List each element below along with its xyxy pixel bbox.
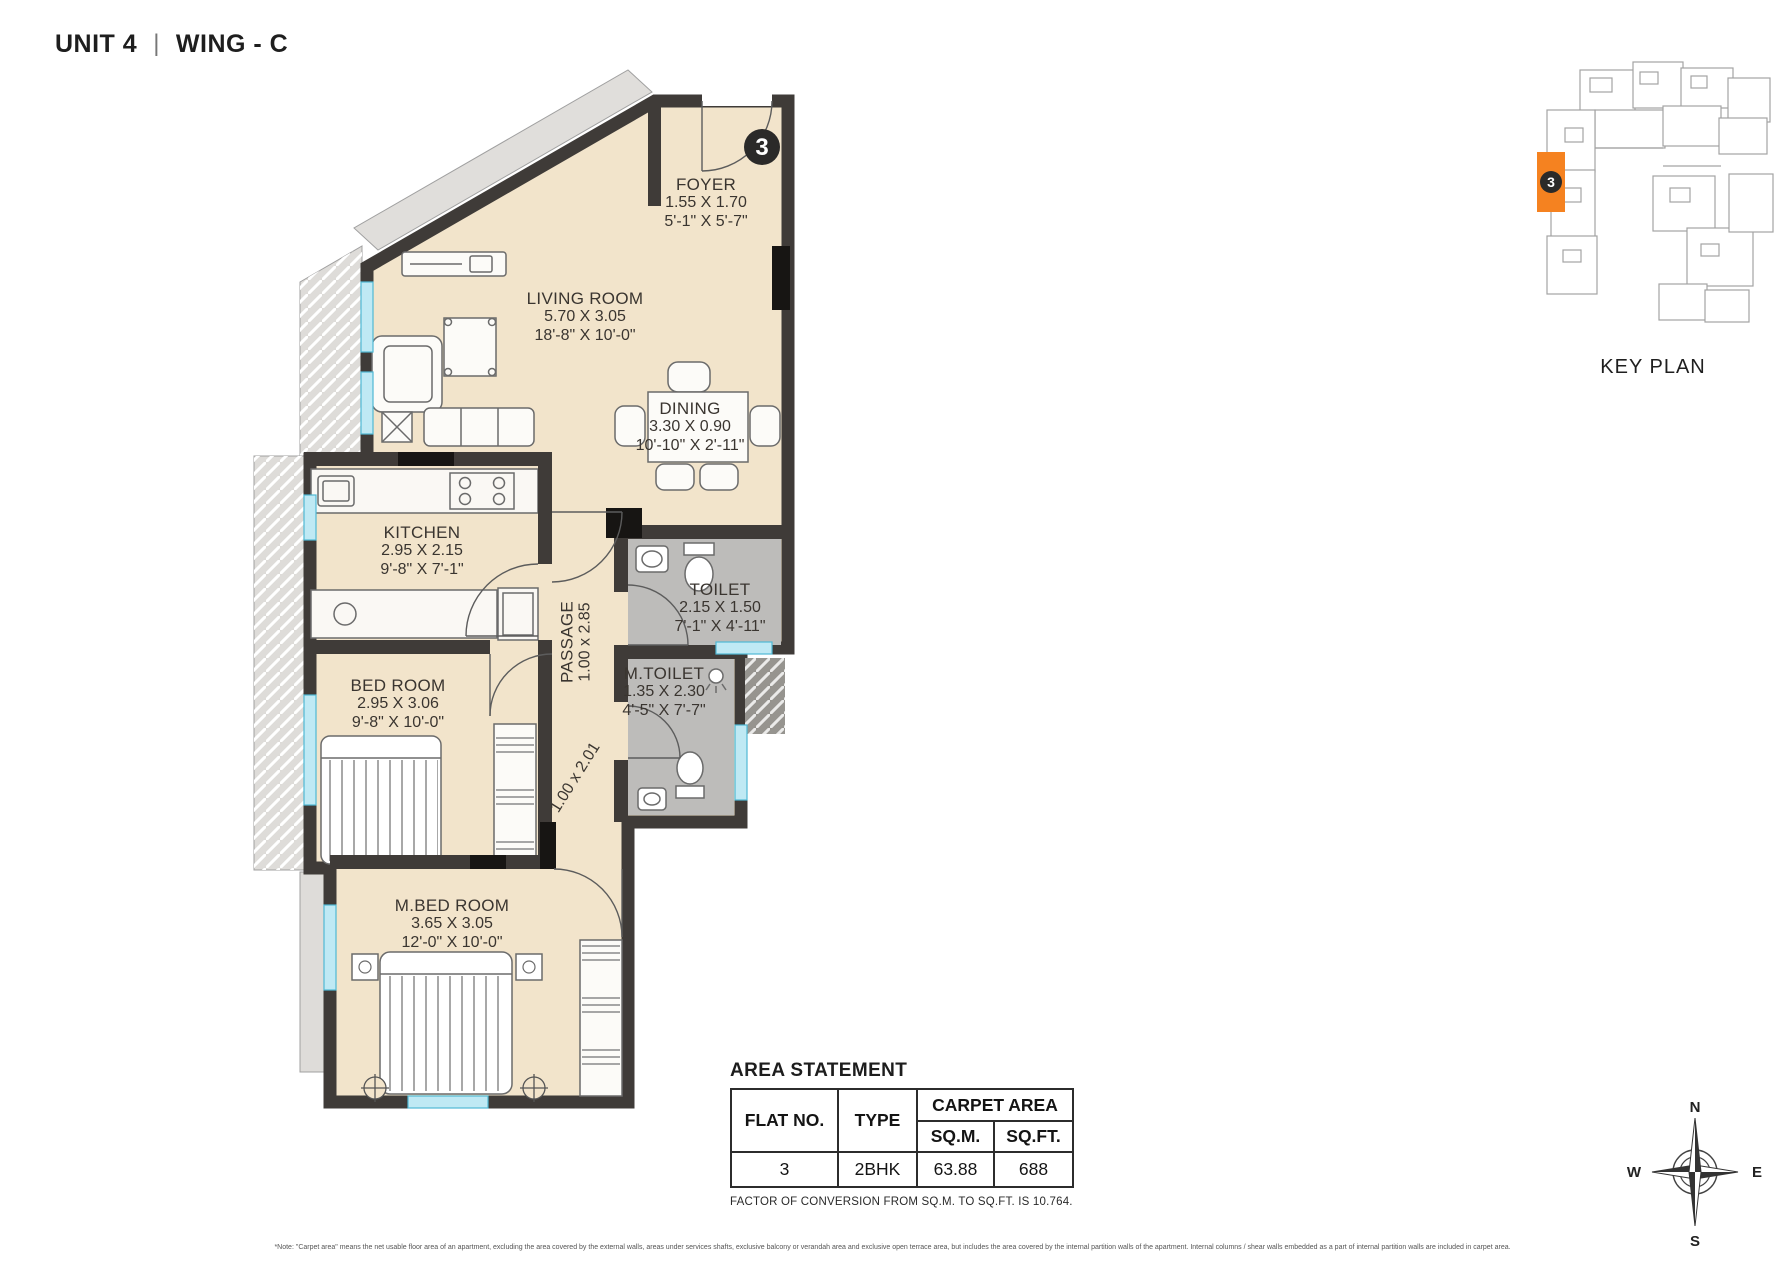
conversion-note: FACTOR OF CONVERSION FROM SQ.M. TO SQ.FT… bbox=[730, 1196, 1073, 1208]
mbedroom-furniture bbox=[352, 940, 622, 1102]
room-dim-m: 1.35 X 2.30 bbox=[622, 683, 705, 702]
room-dim-m: 2.15 X 1.50 bbox=[675, 599, 766, 618]
window bbox=[361, 282, 373, 352]
room-name: DINING bbox=[636, 399, 745, 418]
window bbox=[361, 372, 373, 434]
window bbox=[304, 495, 316, 540]
kitchen-label: KITCHEN 2.95 X 2.15 9'-8" X 7'-1" bbox=[380, 523, 463, 579]
side-table bbox=[516, 954, 542, 980]
room-dim-m: 2.95 X 3.06 bbox=[351, 695, 446, 714]
compass-north-label: N bbox=[1690, 1099, 1701, 1116]
bedroom-label: BED ROOM 2.95 X 3.06 9'-8" X 10'-0" bbox=[351, 676, 446, 732]
area-statement-table: FLAT NO. TYPE CARPET AREA SQ.M. SQ.FT. 3… bbox=[730, 1088, 1074, 1188]
room-dim-m: 5.70 X 3.05 bbox=[527, 308, 644, 327]
cell-type: 2BHK bbox=[838, 1152, 917, 1187]
carpet-area-footnote: *Note: "Carpet area" means the net usabl… bbox=[243, 1244, 1543, 1251]
key-plan-drawing: 3 bbox=[1537, 62, 1773, 322]
unit-number-badge: 3 bbox=[744, 129, 780, 165]
room-name: M.TOILET bbox=[622, 664, 705, 683]
area-statement-title: AREA STATEMENT bbox=[730, 1060, 907, 1082]
compass-south-label: S bbox=[1690, 1233, 1700, 1250]
foyer-label: FOYER 1.55 X 1.70 5'-1" X 5'-7" bbox=[664, 175, 747, 231]
key-plan-badge-text: 3 bbox=[1547, 174, 1555, 190]
title-separator: | bbox=[153, 30, 160, 58]
room-dim-ft: 9'-8" X 10'-0" bbox=[351, 714, 446, 733]
side-table bbox=[352, 954, 378, 980]
service-shaft bbox=[745, 658, 785, 734]
floor-plan-page: 3 3 bbox=[0, 0, 1785, 1262]
room-name: KITCHEN bbox=[380, 523, 463, 542]
window bbox=[735, 725, 747, 800]
window bbox=[408, 1096, 488, 1108]
room-dim-ft: 9'-8" X 7'-1" bbox=[380, 561, 463, 580]
dining-chair bbox=[750, 406, 780, 446]
room-dim-m: 3.65 X 3.05 bbox=[395, 915, 509, 934]
room-dim-m: 2.95 X 2.15 bbox=[380, 542, 463, 561]
compass-west-label: W bbox=[1627, 1164, 1642, 1181]
dining-label: DINING 3.30 X 0.90 10'-10" X 2'-11" bbox=[636, 399, 745, 455]
room-dim-ft: 18'-8" X 10'-0" bbox=[527, 327, 644, 346]
wing-title: WING - C bbox=[176, 30, 288, 59]
room-name: PASSAGE bbox=[557, 601, 576, 683]
passage-label: PASSAGE 1.00 x 2.85 bbox=[557, 601, 595, 683]
col-header-flat-no: FLAT NO. bbox=[731, 1089, 838, 1152]
compass-rose: N S W E bbox=[1627, 1099, 1762, 1250]
room-dim-ft: 7'-1" X 4'-11" bbox=[675, 618, 766, 637]
room-dim-ft: 10'-10" X 2'-11" bbox=[636, 437, 745, 456]
dining-chair bbox=[656, 464, 694, 490]
bedroom-furniture bbox=[321, 724, 536, 864]
room-name: BED ROOM bbox=[351, 676, 446, 695]
col-header-type: TYPE bbox=[838, 1089, 917, 1152]
dining-chair bbox=[668, 362, 710, 392]
key-plan-label: KEY PLAN bbox=[1600, 356, 1705, 379]
window bbox=[324, 905, 336, 990]
room-dim-ft: 12'-0" X 10'-0" bbox=[395, 934, 509, 953]
col-header-sqm: SQ.M. bbox=[917, 1121, 994, 1152]
cell-sqft: 688 bbox=[994, 1152, 1073, 1187]
room-dim-ft: 5'-1" X 5'-7" bbox=[664, 213, 747, 232]
room-dim-ft: 4'-5" X 7'-7" bbox=[622, 702, 705, 721]
cell-sqm: 63.88 bbox=[917, 1152, 994, 1187]
room-dim-m: 1.55 X 1.70 bbox=[664, 194, 747, 213]
wc-tank bbox=[684, 543, 714, 555]
room-dim-m: 1.00 x 2.85 bbox=[576, 601, 595, 683]
kitchen-sink-2 bbox=[334, 603, 356, 625]
dining-chair bbox=[700, 464, 738, 490]
room-dim-m: 3.30 X 0.90 bbox=[636, 418, 745, 437]
wc-tank bbox=[676, 786, 704, 798]
room-name: TOILET bbox=[675, 580, 766, 599]
page-title: UNIT 4 | WING - C bbox=[55, 30, 288, 59]
sofa bbox=[424, 408, 534, 446]
col-header-sqft: SQ.FT. bbox=[994, 1121, 1073, 1152]
table-row: 3 2BHK 63.88 688 bbox=[731, 1152, 1073, 1187]
room-name: FOYER bbox=[664, 175, 747, 194]
mbedroom-label: M.BED ROOM 3.65 X 3.05 12'-0" X 10'-0" bbox=[395, 896, 509, 952]
toilet-label: TOILET 2.15 X 1.50 7'-1" X 4'-11" bbox=[675, 580, 766, 636]
hob bbox=[450, 473, 514, 509]
coffee-table bbox=[444, 318, 496, 376]
entrance-opening bbox=[702, 92, 772, 106]
wc bbox=[677, 752, 703, 784]
living-room-label: LIVING ROOM 5.70 X 3.05 18'-8" X 10'-0" bbox=[527, 289, 644, 345]
window bbox=[716, 642, 772, 654]
unit-title: UNIT 4 bbox=[55, 30, 137, 59]
mtoilet-label: M.TOILET 1.35 X 2.30 4'-5" X 7'-7" bbox=[622, 664, 705, 720]
room-name: LIVING ROOM bbox=[527, 289, 644, 308]
room-name: M.BED ROOM bbox=[395, 896, 509, 915]
unit-number-badge-text: 3 bbox=[755, 134, 768, 161]
col-header-carpet-area: CARPET AREA bbox=[917, 1089, 1073, 1121]
window bbox=[304, 695, 316, 805]
cell-flat-no: 3 bbox=[731, 1152, 838, 1187]
shower-icon bbox=[709, 669, 723, 683]
compass-east-label: E bbox=[1752, 1164, 1762, 1181]
